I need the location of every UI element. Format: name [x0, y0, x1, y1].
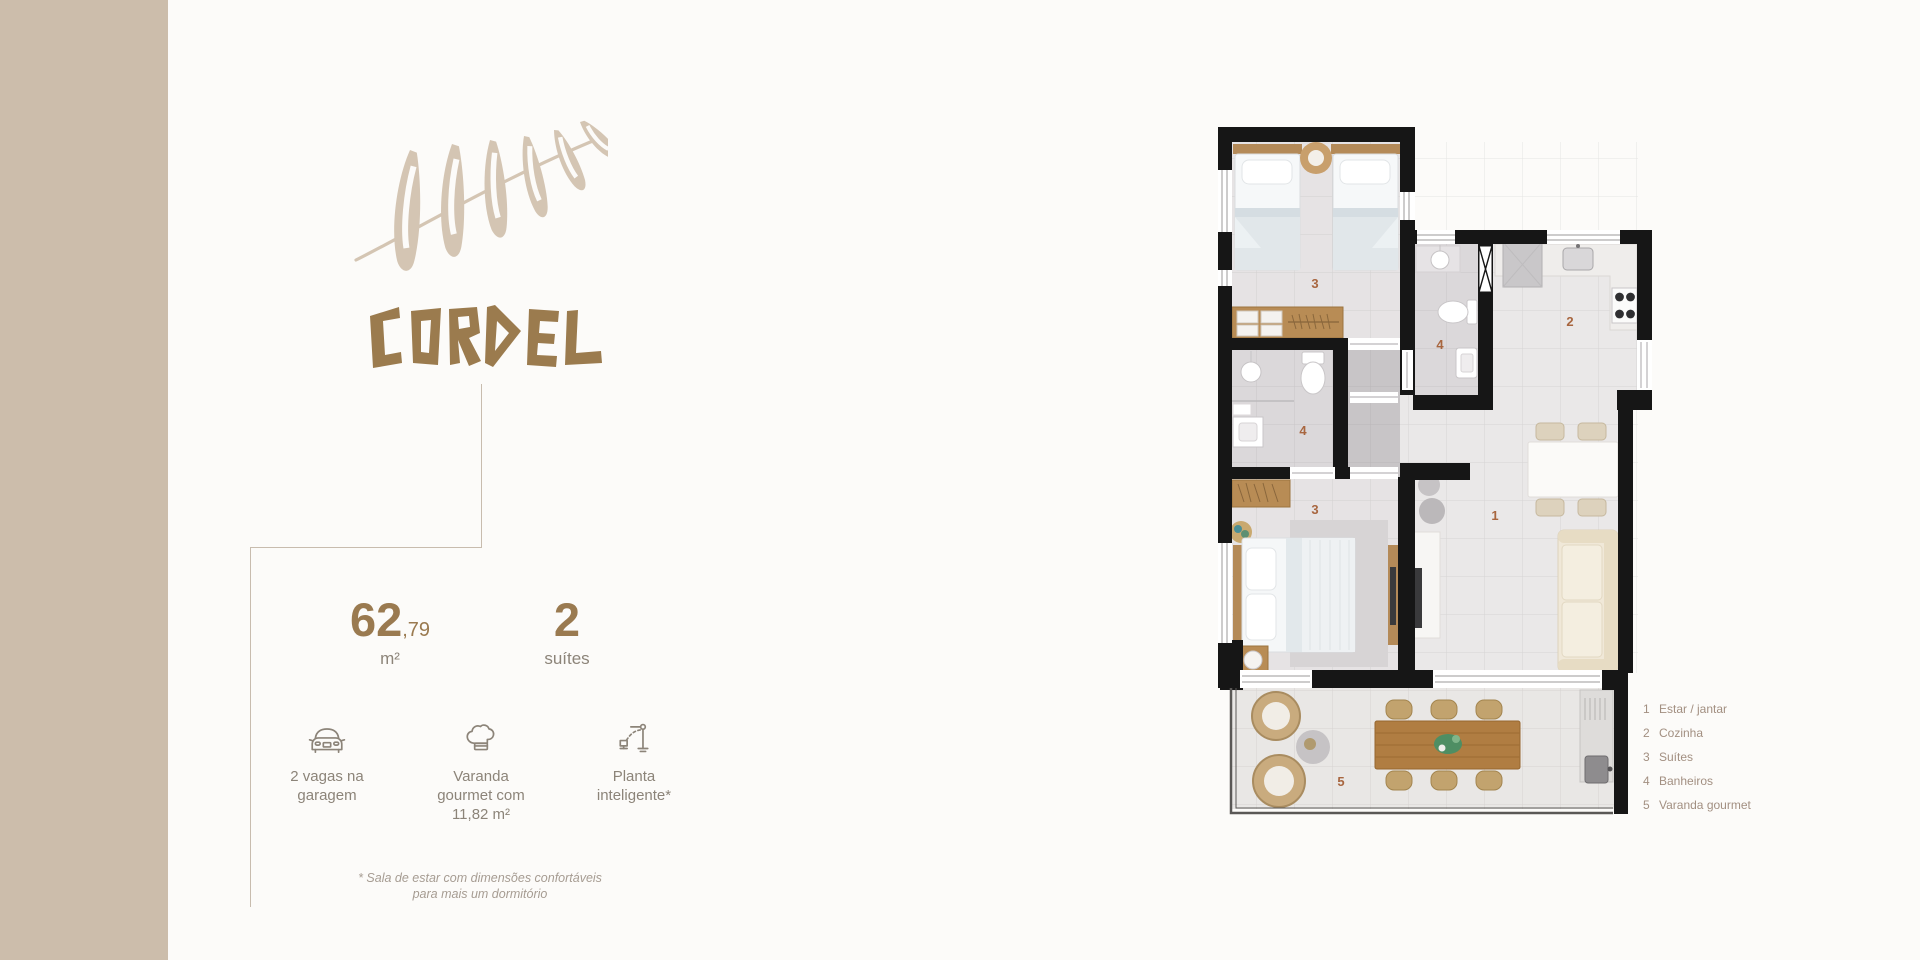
footnote-line2: para mais um dormitório	[325, 886, 635, 902]
area-int: 62	[350, 593, 402, 646]
floor-plan: 3 4 2 4 3 1 5	[1218, 120, 1680, 820]
connector-line-vertical-top	[481, 384, 482, 547]
footnote: * Sala de estar com dimensões confortáve…	[325, 870, 635, 902]
feature-gourmet-balcony: Varanda gourmet com 11,82 m²	[411, 720, 551, 824]
area-dec: ,79	[402, 619, 430, 641]
room-number-suite-bottom: 3	[1311, 502, 1318, 517]
feature-parking: 2 vagas na garagem	[257, 720, 397, 805]
room-number-bath-left: 4	[1299, 423, 1307, 438]
page: { "brand": { "name": "CORDEL", "logo": "…	[0, 0, 1920, 960]
connector-line-vertical-left	[250, 547, 251, 907]
car-icon	[308, 720, 346, 758]
room-number-bath-mid: 4	[1436, 337, 1444, 352]
feature-parking-label: 2 vagas na garagem	[271, 767, 383, 805]
room-number-living: 1	[1491, 508, 1498, 523]
legend-label: Banheiros	[1659, 774, 1713, 788]
legend-label: Estar / jantar	[1659, 702, 1727, 716]
legend-item-cozinha: 2Cozinha	[1643, 721, 1751, 745]
legend-item-suites: 3Suítes	[1643, 745, 1751, 769]
fern-leaf-logo	[352, 110, 608, 306]
feature-gourmet-balcony-label: Varanda gourmet com 11,82 m²	[428, 767, 534, 824]
stat-area: 62,79 m²	[315, 596, 465, 669]
stat-area-value: 62,79	[315, 596, 465, 643]
side-strip	[0, 0, 168, 960]
legend-item-varanda-gourmet: 5Varanda gourmet	[1643, 793, 1751, 817]
legend-label: Varanda gourmet	[1659, 798, 1751, 812]
suites-value: 2	[492, 596, 642, 643]
brand-wordmark	[368, 304, 604, 370]
legend-item-banheiros: 4Banheiros	[1643, 769, 1751, 793]
suites-label: suítes	[492, 649, 642, 669]
area-unit: m²	[315, 649, 465, 669]
legend-number: 4	[1643, 769, 1653, 793]
stat-suites: 2 suítes	[492, 596, 642, 669]
chef-hat-icon	[462, 720, 500, 758]
legend-item-estar-jantar: 1Estar / jantar	[1643, 697, 1751, 721]
footnote-line1: * Sala de estar com dimensões confortáve…	[325, 870, 635, 886]
room-number-kitchen: 2	[1566, 314, 1573, 329]
legend-number: 5	[1643, 793, 1653, 817]
legend-number: 1	[1643, 697, 1653, 721]
room-number-varanda: 5	[1337, 774, 1344, 789]
legend-number: 2	[1643, 721, 1653, 745]
legend-label: Suítes	[1659, 750, 1693, 764]
smart-plan-icon	[615, 720, 653, 758]
connector-line-horizontal	[250, 547, 482, 548]
feature-smart-plan-label: Planta inteligente*	[578, 767, 690, 805]
room-number-suite-top: 3	[1311, 276, 1318, 291]
legend-number: 3	[1643, 745, 1653, 769]
feature-smart-plan: Planta inteligente*	[564, 720, 704, 805]
legend-label: Cozinha	[1659, 726, 1703, 740]
plan-legend: 1Estar / jantar 2Cozinha 3Suítes 4Banhei…	[1643, 697, 1751, 817]
